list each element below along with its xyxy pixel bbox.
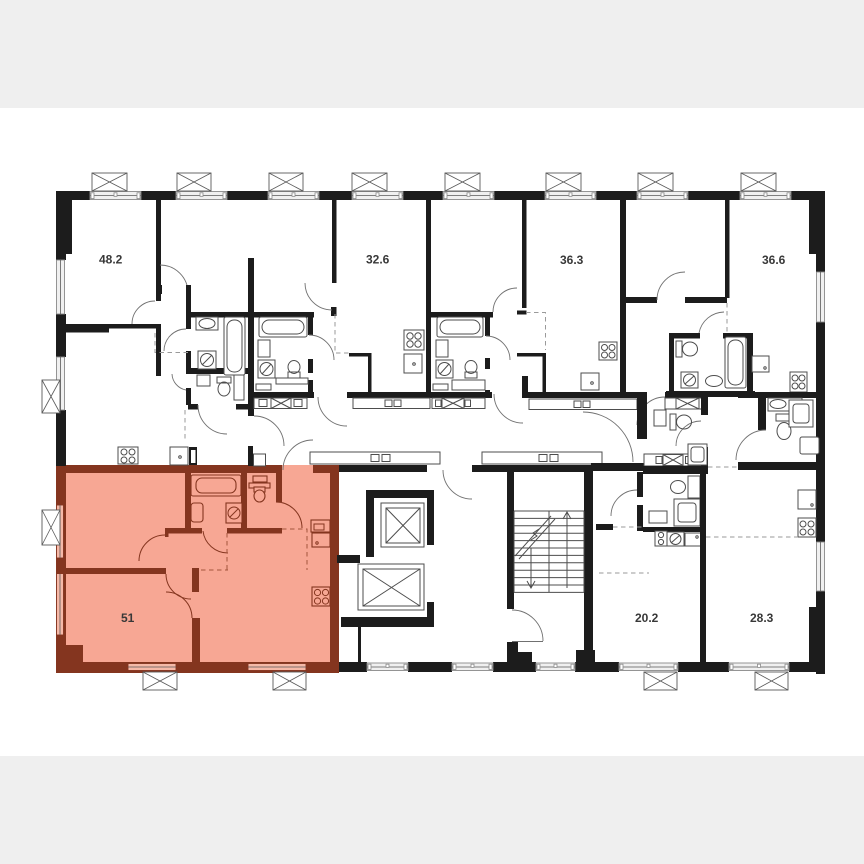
svg-text:20.2: 20.2 — [635, 611, 659, 625]
svg-text:28.3: 28.3 — [750, 611, 774, 625]
svg-text:48.2: 48.2 — [99, 253, 123, 267]
svg-text:32.6: 32.6 — [366, 253, 390, 267]
svg-text:36.6: 36.6 — [762, 253, 786, 267]
svg-text:51: 51 — [121, 611, 135, 625]
svg-text:36.3: 36.3 — [560, 253, 584, 267]
